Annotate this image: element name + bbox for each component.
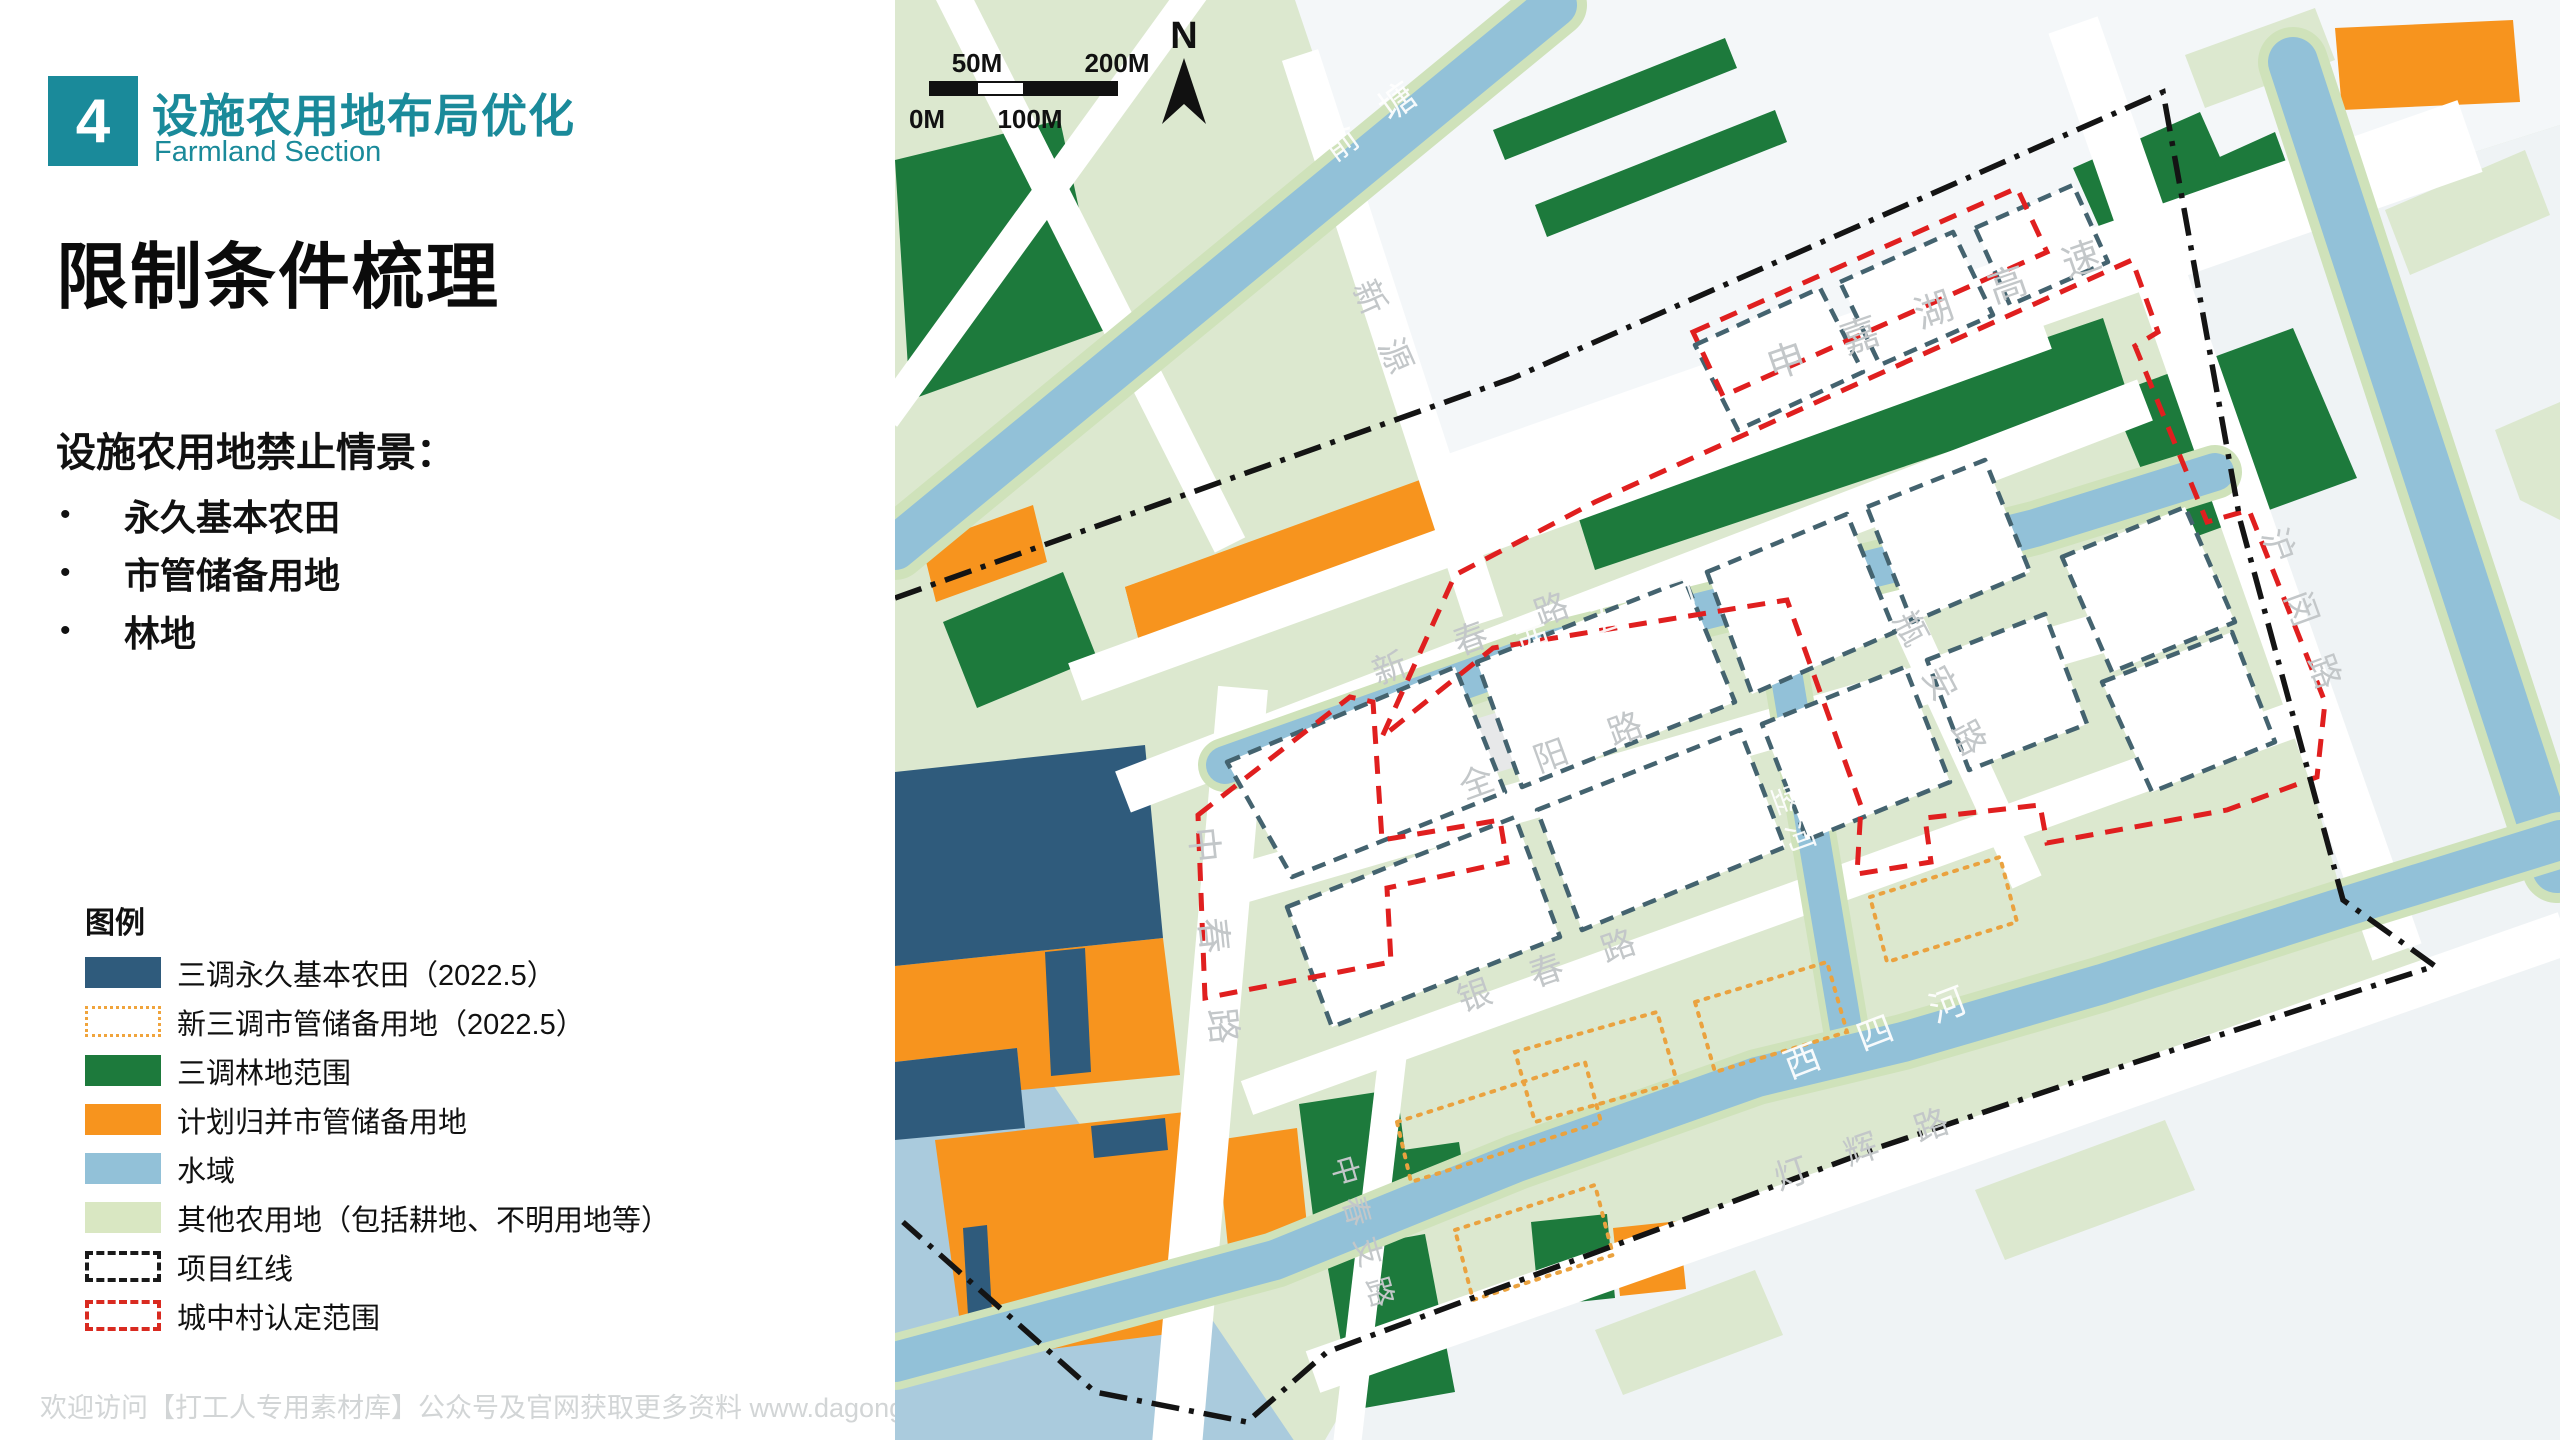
- legend-row: 计划归并市管储备用地: [85, 1103, 670, 1136]
- legend-label: 城中村认定范围: [177, 1295, 380, 1337]
- legend-swatch-other-farmland: [85, 1202, 161, 1233]
- slide: 4 设施农用地布局优化 Farmland Section 限制条件梳理 设施农用…: [0, 0, 2560, 1440]
- north-label: N: [1170, 15, 1197, 57]
- section-number-badge: 4: [48, 76, 138, 166]
- legend-row: 其他农用地（包括耕地、不明用地等）: [85, 1201, 670, 1234]
- basic-farmland-patch: [1045, 948, 1091, 1076]
- legend-label: 三调永久基本农田（2022.5）: [177, 952, 556, 994]
- legend-swatch-new-reserve: [85, 1006, 161, 1037]
- left-panel: 4 设施农用地布局优化 Farmland Section 限制条件梳理 设施农用…: [0, 0, 895, 1440]
- legend-swatch-project-redline: [85, 1251, 161, 1282]
- map-canvas: 新源 申嘉湖高速 沪闵路 新春路 全阳路 瓶安路 中春路 银春路 中春支路 灯辉…: [895, 0, 2560, 1440]
- bullet-icon: •: [60, 614, 124, 648]
- list-item: • 林地: [60, 602, 760, 660]
- scale-label: 100M: [997, 104, 1062, 134]
- legend-label: 其他农用地（包括耕地、不明用地等）: [177, 1197, 670, 1239]
- legend-swatch-forest: [85, 1055, 161, 1086]
- list-item-label: 林地: [124, 605, 196, 657]
- list-item-label: 永久基本农田: [124, 489, 340, 541]
- legend-row: 新三调市管储备用地（2022.5）: [85, 1005, 670, 1038]
- legend-swatch-planned-reserve: [85, 1104, 161, 1135]
- scale-segment: [930, 82, 977, 95]
- legend-label: 计划归并市管储备用地: [177, 1099, 467, 1141]
- legend-row: 三调林地范围: [85, 1054, 670, 1087]
- legend-row: 城中村认定范围: [85, 1299, 670, 1332]
- land-use-map: 新源 申嘉湖高速 沪闵路 新春路 全阳路 瓶安路 中春路 银春路 中春支路 灯辉…: [895, 0, 2560, 1440]
- list-item-label: 市管储备用地: [124, 547, 340, 599]
- prohibit-list-title: 设施农用地禁止情景：: [56, 420, 456, 478]
- list-item: • 永久基本农田: [60, 486, 760, 544]
- scale-segment: [1024, 82, 1117, 95]
- scale-segment: [977, 82, 1024, 95]
- legend-swatch-water: [85, 1153, 161, 1184]
- legend-title: 图例: [85, 898, 670, 942]
- basic-farmland-patch: [895, 1048, 1025, 1140]
- legend-row: 三调永久基本农田（2022.5）: [85, 956, 670, 989]
- legend-swatch-basic-farmland: [85, 957, 161, 988]
- legend-label: 项目红线: [177, 1246, 293, 1288]
- legend-label: 三调林地范围: [177, 1050, 351, 1092]
- legend-label: 水域: [177, 1148, 235, 1190]
- scale-label: 0M: [909, 104, 945, 134]
- scale-label: 50M: [952, 48, 1003, 78]
- bullet-icon: •: [60, 498, 124, 532]
- legend-row: 项目红线: [85, 1250, 670, 1283]
- page-title: 限制条件梳理: [56, 218, 500, 323]
- orange-reserve-patch: [2335, 20, 2520, 110]
- legend-row: 水域: [85, 1152, 670, 1185]
- list-item: • 市管储备用地: [60, 544, 760, 602]
- section-subtitle: Farmland Section: [154, 136, 381, 169]
- bullet-icon: •: [60, 556, 124, 590]
- scale-label: 200M: [1084, 48, 1149, 78]
- legend-label: 新三调市管储备用地（2022.5）: [177, 1001, 585, 1043]
- legend: 图例 三调永久基本农田（2022.5） 新三调市管储备用地（2022.5） 三调…: [85, 898, 670, 1348]
- legend-swatch-urban-village: [85, 1300, 161, 1331]
- prohibit-list: • 永久基本农田 • 市管储备用地 • 林地: [60, 486, 760, 660]
